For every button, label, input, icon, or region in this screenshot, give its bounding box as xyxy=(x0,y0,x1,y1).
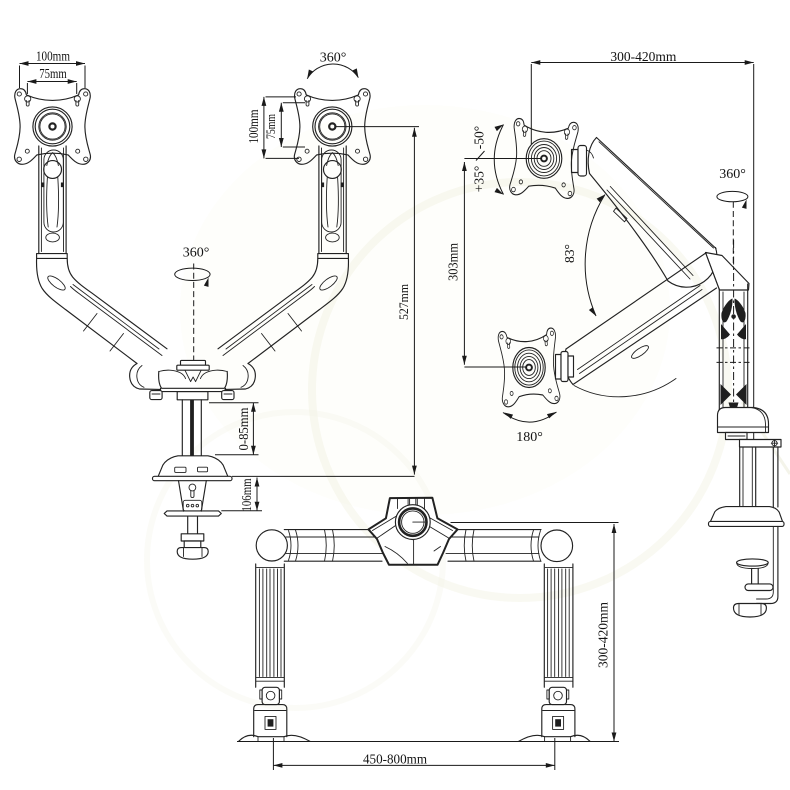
svg-text:450-800mm: 450-800mm xyxy=(363,752,427,767)
svg-text:83°: 83° xyxy=(562,244,577,263)
svg-text:75mm: 75mm xyxy=(39,66,67,81)
svg-text:100mm: 100mm xyxy=(36,49,70,64)
svg-text:-50°: -50° xyxy=(472,126,487,149)
svg-text:0-85mm: 0-85mm xyxy=(236,407,251,450)
svg-text:75mm: 75mm xyxy=(263,114,278,139)
svg-text:360°: 360° xyxy=(320,51,347,66)
svg-text:106mm: 106mm xyxy=(239,478,254,511)
svg-text:303mm: 303mm xyxy=(446,243,461,281)
svg-text:300-420mm: 300-420mm xyxy=(596,602,611,668)
svg-text:180°: 180° xyxy=(516,430,543,445)
svg-text:100mm: 100mm xyxy=(246,109,261,143)
svg-text:527mm: 527mm xyxy=(397,284,411,320)
svg-text:+35°: +35° xyxy=(472,166,487,193)
svg-text:360°: 360° xyxy=(183,246,210,261)
svg-text:300-420mm: 300-420mm xyxy=(610,49,676,64)
svg-text:360°: 360° xyxy=(719,167,746,182)
